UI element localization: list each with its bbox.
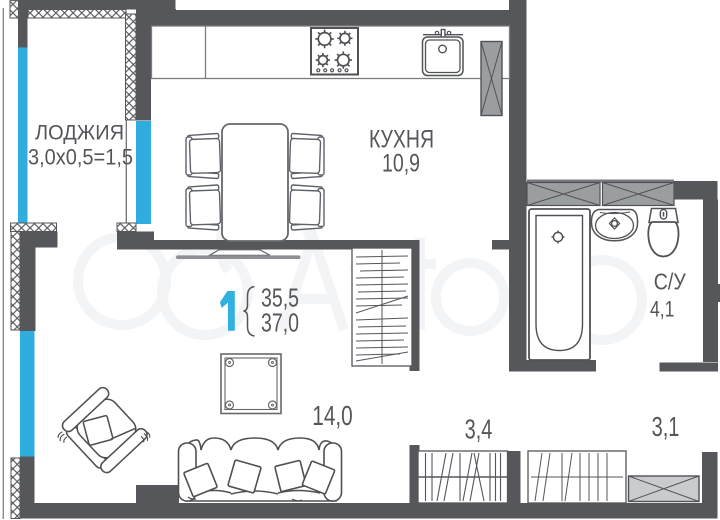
svg-text:37,0: 37,0 — [261, 310, 299, 338]
svg-text:3,4: 3,4 — [465, 414, 493, 445]
svg-text:4,1: 4,1 — [650, 297, 675, 322]
svg-text:3,1: 3,1 — [652, 411, 680, 442]
svg-text:3,0х0,5=1,5: 3,0х0,5=1,5 — [28, 144, 133, 169]
svg-text:С/У: С/У — [654, 269, 686, 295]
svg-text:10,9: 10,9 — [382, 149, 420, 177]
svg-text:ЛОДЖИЯ: ЛОДЖИЯ — [35, 122, 124, 145]
svg-text:35,5: 35,5 — [261, 284, 299, 312]
svg-text:14,0: 14,0 — [312, 400, 353, 431]
